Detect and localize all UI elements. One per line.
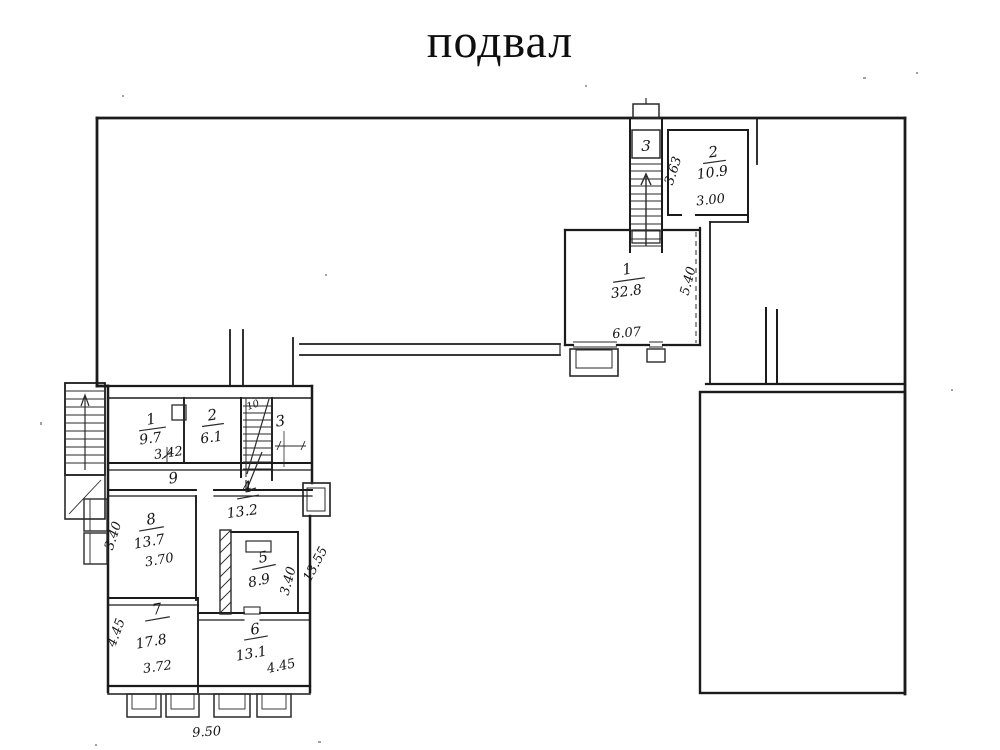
large-room-southeast xyxy=(700,392,905,693)
upper-stair-number: 3 xyxy=(641,137,651,155)
lower-room5-area: 8.9 xyxy=(247,571,272,591)
lower-room4-number: 4 xyxy=(240,477,254,497)
bottom-window-wells xyxy=(127,694,291,717)
lower-room8-height-dim: 3.40 xyxy=(102,520,125,552)
lower-stair-number: 10 xyxy=(245,398,261,413)
upper-room1-walls xyxy=(565,228,700,376)
lower-room5-number: 5 xyxy=(256,547,269,567)
lower-room2-number: 2 xyxy=(205,405,218,424)
lower-room5-height-dim: 3.40 xyxy=(278,565,300,597)
lower-overall-width-dim: 9.50 xyxy=(192,724,222,741)
floor-plan-drawing: 3 2 10.9 3.00 3.63 1 32.8 6.07 5.40 1 9.… xyxy=(0,0,1000,750)
lower-room6-width-dim: 4.45 xyxy=(265,656,297,677)
window-well xyxy=(84,499,107,531)
lower-room6-number: 6 xyxy=(249,619,262,638)
window-well xyxy=(647,349,665,362)
lower-room8-width-dim: 3.70 xyxy=(144,551,175,571)
lower-room7-area: 17.8 xyxy=(135,631,169,652)
lower-room1-area: 9.7 xyxy=(138,430,162,449)
lower-room2-area: 6.1 xyxy=(199,429,223,448)
window-well xyxy=(570,349,618,376)
upper-room2-area: 10.9 xyxy=(696,163,729,183)
lower-overall-height-dim: 13.55 xyxy=(301,544,332,584)
corridor-walls xyxy=(230,330,560,386)
upper-stairwell xyxy=(630,98,662,252)
lower-room7-width-dim: 3.72 xyxy=(142,658,173,677)
upper-room1-number: 1 xyxy=(621,259,634,278)
scan-noise xyxy=(40,72,953,746)
corridor-number: 9 xyxy=(167,468,179,487)
hatched-partition xyxy=(220,530,231,614)
upper-room2-width-dim: 3.00 xyxy=(695,192,725,210)
upper-room1-height-dim: 5.40 xyxy=(678,265,700,297)
lower-room1-width-dim: 3.42 xyxy=(153,444,184,463)
upper-room2-height-dim: 3.63 xyxy=(662,155,685,187)
outside-entrance-stair xyxy=(65,383,107,564)
lower-room8-area: 13.7 xyxy=(133,531,167,552)
exterior-walls xyxy=(97,118,905,694)
lower-room7-number: 7 xyxy=(151,599,164,618)
upper-room1-area: 32.8 xyxy=(610,282,643,302)
label-underlines xyxy=(139,160,726,640)
door-mark xyxy=(244,607,260,614)
lower-room3-number: 3 xyxy=(274,411,286,430)
upper-room1-width-dim: 6.07 xyxy=(612,325,643,343)
lower-room4-area: 13.2 xyxy=(226,502,259,522)
upper-room2-number: 2 xyxy=(706,142,719,161)
upper-right-walls xyxy=(700,118,905,693)
lower-room8-number: 8 xyxy=(145,509,158,528)
lower-room1-number: 1 xyxy=(145,409,158,428)
scanned-floor-plan-page: подвал xyxy=(0,0,1000,750)
lower-room6-area: 13.1 xyxy=(235,643,268,664)
